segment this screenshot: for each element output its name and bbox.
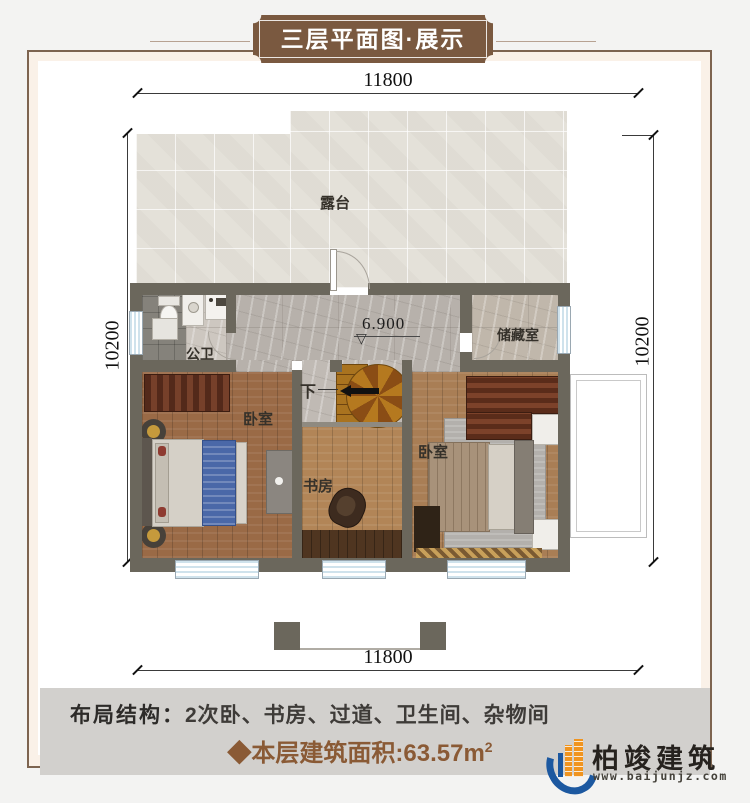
hallway-opening-right [412,360,460,372]
elevation-value: 6.900 [362,314,432,334]
dim-extension-line [622,135,654,136]
dim-top-value: 11800 [338,69,438,92]
stairs-down-label: 下 [300,378,316,402]
bathroom-label: 公卫 [186,344,214,364]
lamp-shade [147,529,160,542]
cabinet-right-bedroom [414,506,440,552]
wall-bathroom-right-stub [226,295,236,333]
banner-left-line [150,41,250,42]
window-bottom-2 [322,560,386,579]
dim-left-value: 10200 [102,318,125,374]
balcony-outline-inner [576,380,641,532]
layout-structure-label: 布局结构： [70,704,185,727]
wall-top-right [368,283,570,295]
bed-left-headboard [142,438,152,526]
hallway-opening-left [236,360,292,372]
bed-left-blue-blanket [202,440,236,526]
wall-top-left [130,283,330,295]
layout-structure-value: 2次卧、书房、过道、卫生间、杂物间 [185,704,550,727]
dresser-bowl [275,477,283,485]
stairs-label-leader [318,389,338,390]
window-right [557,306,571,354]
floor-area-sup: 2 [485,739,493,755]
banner-right-line [496,41,596,42]
logo-building-bar-orange-2 [574,739,583,777]
logo-building-bar-orange-1 [565,745,572,777]
terrace-step-trim [287,108,290,134]
dim-line-bottom [137,670,638,671]
decor-pillow [158,446,166,456]
decor-runner [416,548,542,558]
diamond-icon: ◆ [227,740,251,767]
post-left [274,622,300,650]
sink-basin [188,302,199,313]
dim-line-top [137,93,638,94]
dim-right-value: 10200 [632,314,655,370]
wall-storage-upper [460,295,472,333]
wall-study-top [302,422,402,427]
window-left [129,311,143,355]
logo-building-bar-blue [558,753,563,777]
lamp-shade [147,425,160,438]
spiral-staircase [346,364,410,428]
washer-display [216,298,226,306]
post-right [420,622,446,650]
page-title: 三层平面图·展示 [253,15,493,63]
stairs-direction-arrow [340,385,351,397]
wall-study-bedroomright [402,360,412,558]
floor-area-text: 本层建筑面积:63.57m [251,740,484,767]
bed-right-headboard [514,440,534,534]
storage-label: 储藏室 [497,325,539,345]
company-logo: 柏竣建筑 www.baijunjz.com [545,735,745,793]
stairs-direction-arrow-bar [351,388,379,394]
washer-knob [209,298,213,302]
terrace-floor-left [133,131,293,288]
wardrobe-right-bedroom [466,376,560,414]
study-desk [302,530,402,558]
decor-pillow [158,507,166,517]
wardrobe-left-bedroom [144,374,230,412]
nightstand-right-top [532,414,560,445]
title-banner: 三层平面图·展示 [253,15,493,63]
window-bottom-1 [175,560,259,579]
study-label: 书房 [303,475,333,496]
bed-left-footbench [236,442,247,524]
shower-tray [152,318,178,340]
bedroom-right-label: 卧室 [418,441,448,462]
elevation-triangle-symbol: ▽ [356,331,367,345]
logo-website: www.baijunjz.com [593,769,728,783]
wall-stair-stub [330,360,342,372]
bed-right-pillows [488,444,516,530]
window-bottom-3 [447,560,526,579]
nightstand-right-bottom [532,519,560,550]
layout-structure-line: 布局结构：2次卧、书房、过道、卫生间、杂物间 [70,699,550,729]
wall-storage-bottom [460,360,570,372]
wardrobe-right-bedroom-lower [466,412,532,440]
terrace-label: 露台 [320,192,350,213]
bedroom-left-label: 卧室 [243,408,273,429]
dim-line-left [127,133,128,562]
